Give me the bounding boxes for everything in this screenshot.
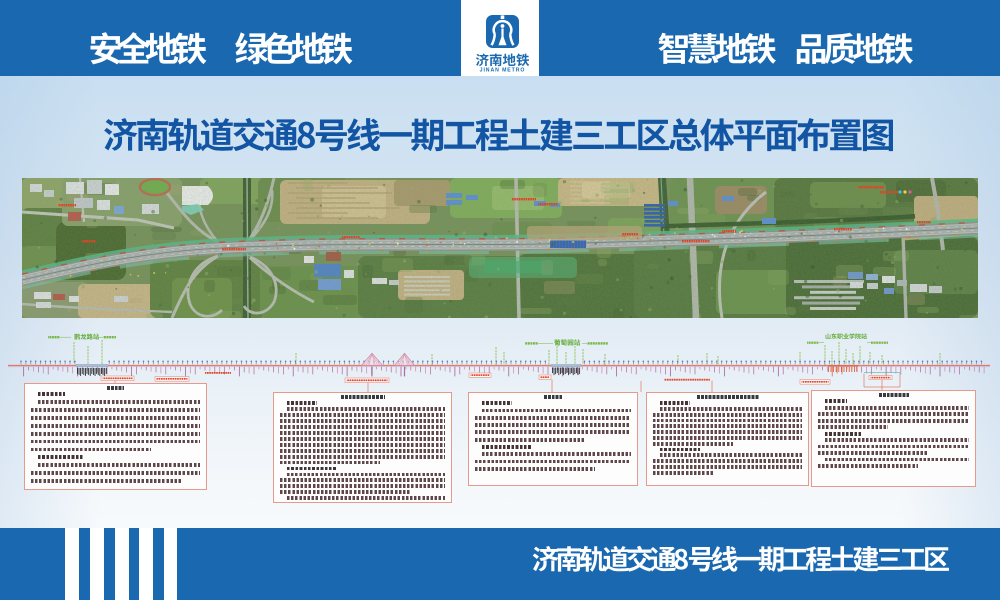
svg-text:JINAN METRO: JINAN METRO xyxy=(480,68,526,74)
